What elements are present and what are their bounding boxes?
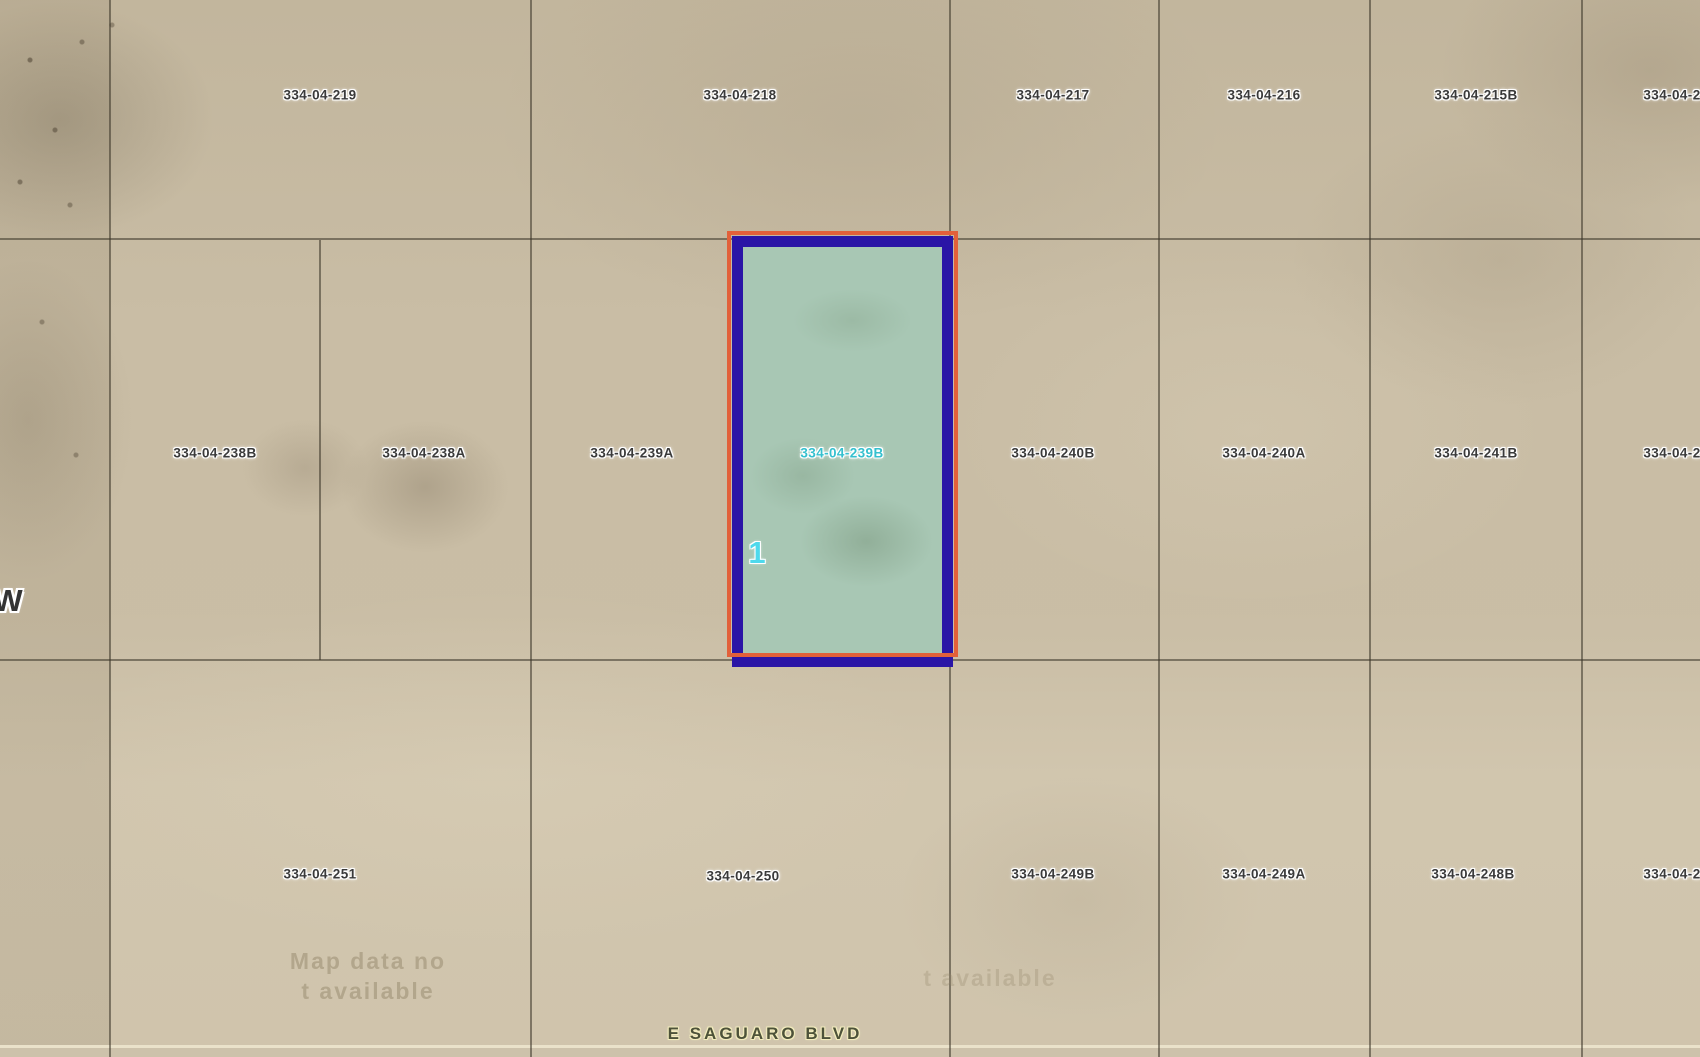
selected-parcel-marker: 1 [748, 535, 765, 571]
grid-line-vertical [1369, 0, 1371, 1057]
grid-line-vertical [1158, 0, 1160, 1057]
parcel-label[interactable]: 334-04-2 [1643, 446, 1700, 461]
street-label: E SAGUARO BLVD [668, 1024, 863, 1044]
parcel-label[interactable]: 334-04-238B [173, 446, 256, 461]
parcel-label[interactable]: 334-04-2 [1643, 867, 1700, 882]
parcel-label[interactable]: 334-04-2 [1643, 88, 1700, 103]
parcel-map-canvas[interactable]: 1 W E SAGUARO BLVD 334-04-219334-04-2183… [0, 0, 1700, 1057]
parcel-label[interactable]: 334-04-248B [1431, 867, 1514, 882]
map-watermark: Map data not available [290, 946, 446, 1006]
grid-line-vertical [530, 0, 532, 1057]
parcel-label[interactable]: 334-04-215B [1434, 88, 1517, 103]
parcel-label[interactable]: 334-04-240B [1011, 446, 1094, 461]
parcel-label[interactable]: 334-04-218 [703, 88, 776, 103]
parcel-label[interactable]: 334-04-251 [283, 867, 356, 882]
map-watermark: t available [923, 963, 1056, 993]
parcel-label[interactable]: 334-04-240A [1222, 446, 1305, 461]
parcel-label[interactable]: 334-04-250 [706, 869, 779, 884]
parcel-label[interactable]: 334-04-219 [283, 88, 356, 103]
parcel-label[interactable]: 334-04-216 [1227, 88, 1300, 103]
edge-street-label-partial: W [0, 583, 23, 619]
road-band [0, 1045, 1700, 1057]
parcel-label[interactable]: 334-04-238A [382, 446, 465, 461]
parcel-label[interactable]: 334-04-239A [590, 446, 673, 461]
parcel-label[interactable]: 334-04-249A [1222, 867, 1305, 882]
parcel-label-selected[interactable]: 334-04-239B [800, 446, 883, 461]
parcel-label[interactable]: 334-04-217 [1016, 88, 1089, 103]
grid-line-vertical [1581, 0, 1583, 1057]
grid-line-vertical [319, 240, 321, 660]
parcel-label[interactable]: 334-04-241B [1434, 446, 1517, 461]
parcel-label[interactable]: 334-04-249B [1011, 867, 1094, 882]
grid-line-vertical [109, 0, 111, 1057]
